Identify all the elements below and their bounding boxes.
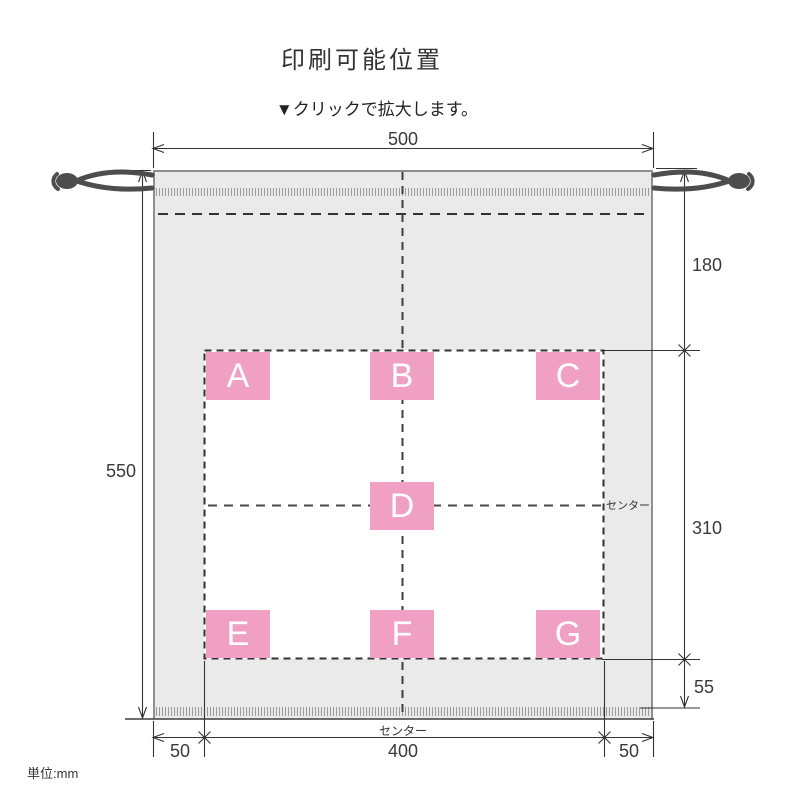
dim-top-to-print: 180 <box>692 255 722 276</box>
center-label-bottom: センター <box>368 722 438 739</box>
dim-print-width: 400 <box>378 741 428 762</box>
drawstring-right-icon <box>654 172 753 189</box>
print-spot-d[interactable]: D <box>370 482 434 530</box>
dim-left-margin: 50 <box>158 741 202 762</box>
dim-bag-height: 550 <box>94 461 136 482</box>
unit-note: 単位:mm <box>27 763 78 782</box>
dim-print-height: 310 <box>692 518 722 539</box>
dim-bag-width: 500 <box>378 129 428 150</box>
dimension-lines <box>124 132 700 757</box>
print-spot-c[interactable]: C <box>536 352 600 400</box>
diagram-lines <box>0 0 800 800</box>
center-label-right: センター <box>605 497 651 513</box>
dim-print-to-bottom: 55 <box>694 677 714 698</box>
drawstring-left-icon <box>53 172 152 189</box>
print-spot-g[interactable]: G <box>536 610 600 658</box>
page: 印刷可能位置 ▼クリックで拡大します。 <box>0 0 800 800</box>
print-spot-b[interactable]: B <box>370 352 434 400</box>
print-spot-a[interactable]: A <box>206 352 270 400</box>
print-spot-f[interactable]: F <box>370 610 434 658</box>
print-spot-e[interactable]: E <box>206 610 270 658</box>
dim-right-margin: 50 <box>607 741 651 762</box>
